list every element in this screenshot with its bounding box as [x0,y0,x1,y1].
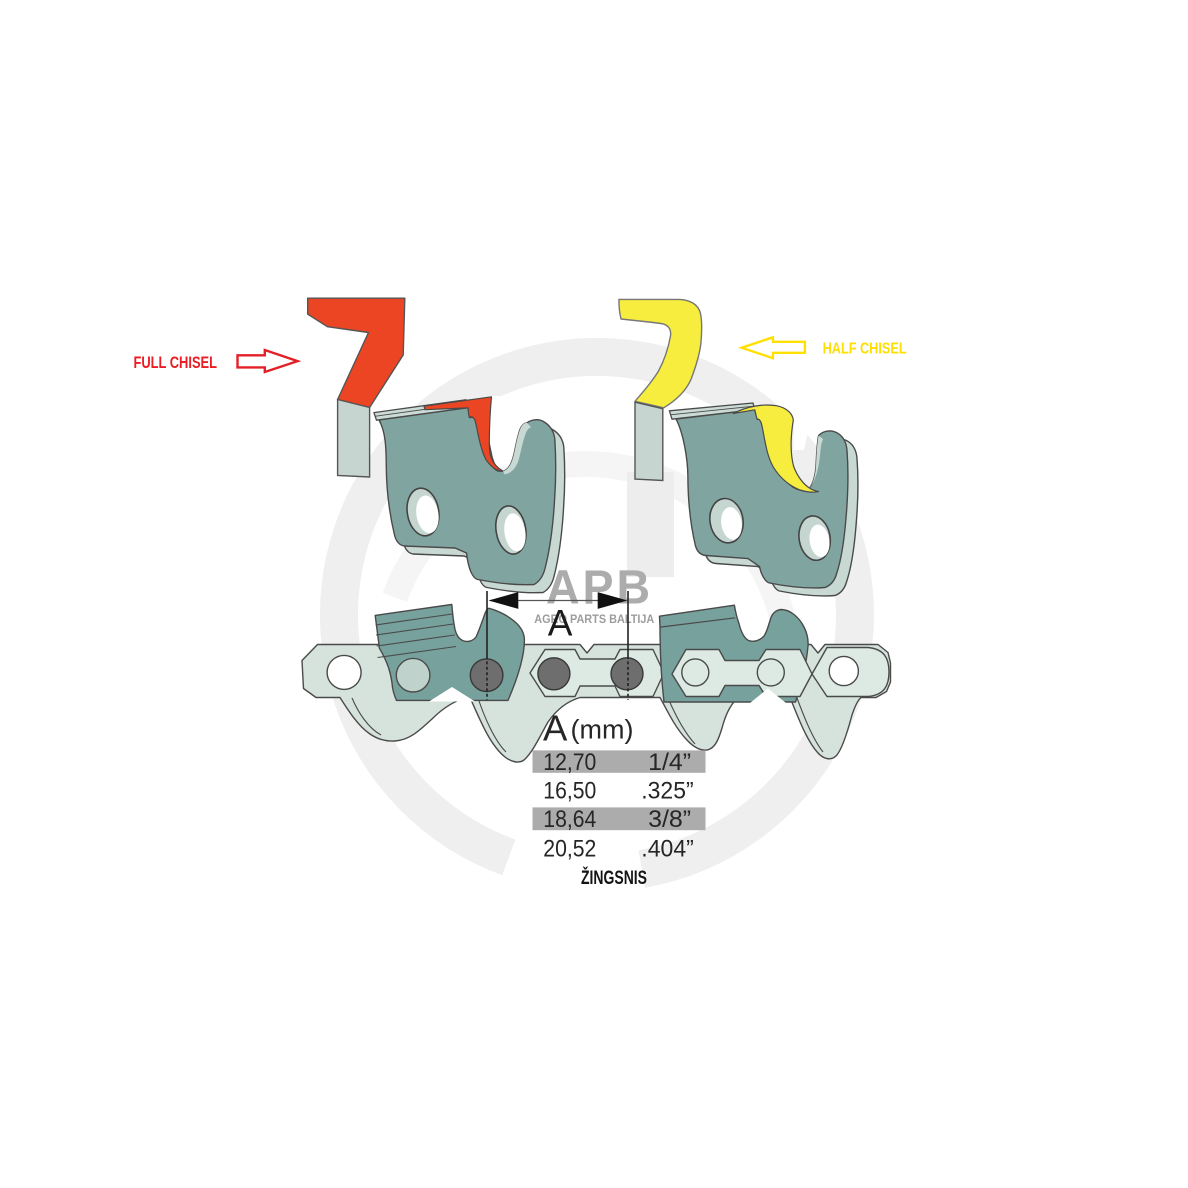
svg-text:.404”: .404” [641,836,694,863]
svg-text:(mm): (mm) [571,715,634,745]
svg-text:HALF CHISEL: HALF CHISEL [823,341,907,358]
svg-text:FULL CHISEL: FULL CHISEL [134,353,218,372]
svg-text:A: A [543,708,568,749]
svg-text:.325”: .325” [641,777,693,804]
svg-text:16,50: 16,50 [543,777,596,804]
svg-text:3/8”: 3/8” [648,806,691,833]
svg-text:20,52: 20,52 [543,836,596,863]
svg-text:ŽINGSNIS: ŽINGSNIS [581,867,647,889]
svg-text:12,70: 12,70 [543,749,596,776]
svg-text:1/4”: 1/4” [648,749,691,776]
svg-text:18,64: 18,64 [543,806,596,833]
svg-text:A: A [548,603,573,644]
